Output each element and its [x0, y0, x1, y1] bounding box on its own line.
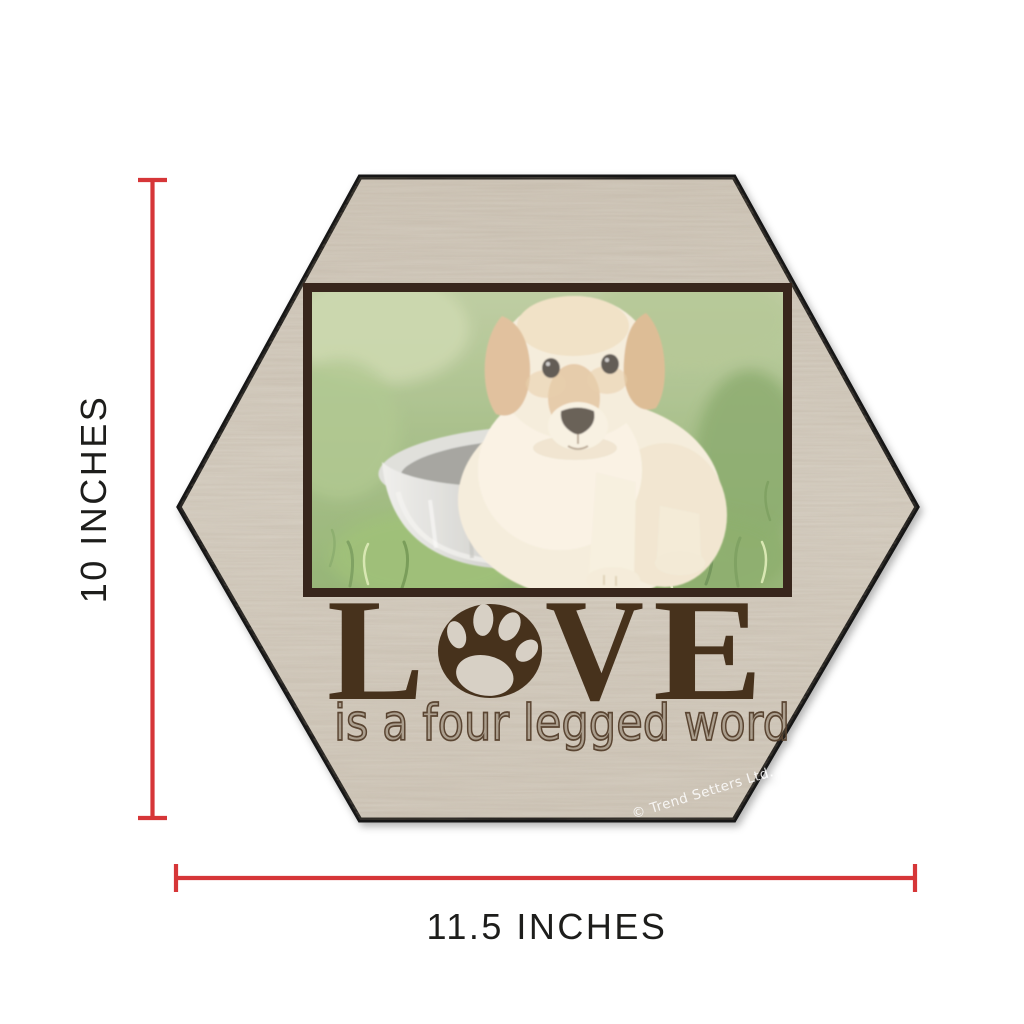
product-image: L V E is a four legged word © Trend Sett… [0, 0, 1024, 1024]
subtitle-text: is a four legged word [334, 694, 790, 752]
hexagon-sign: L V E is a four legged word © Trend Sett… [176, 174, 920, 824]
photo-frame [280, 270, 805, 600]
height-dimension-label: 10 INCHES [73, 395, 114, 604]
width-dimension-label: 11.5 INCHES [427, 906, 668, 947]
height-dimension-line [138, 180, 167, 818]
width-dimension-line [176, 864, 915, 892]
puppy-photo [280, 270, 805, 600]
